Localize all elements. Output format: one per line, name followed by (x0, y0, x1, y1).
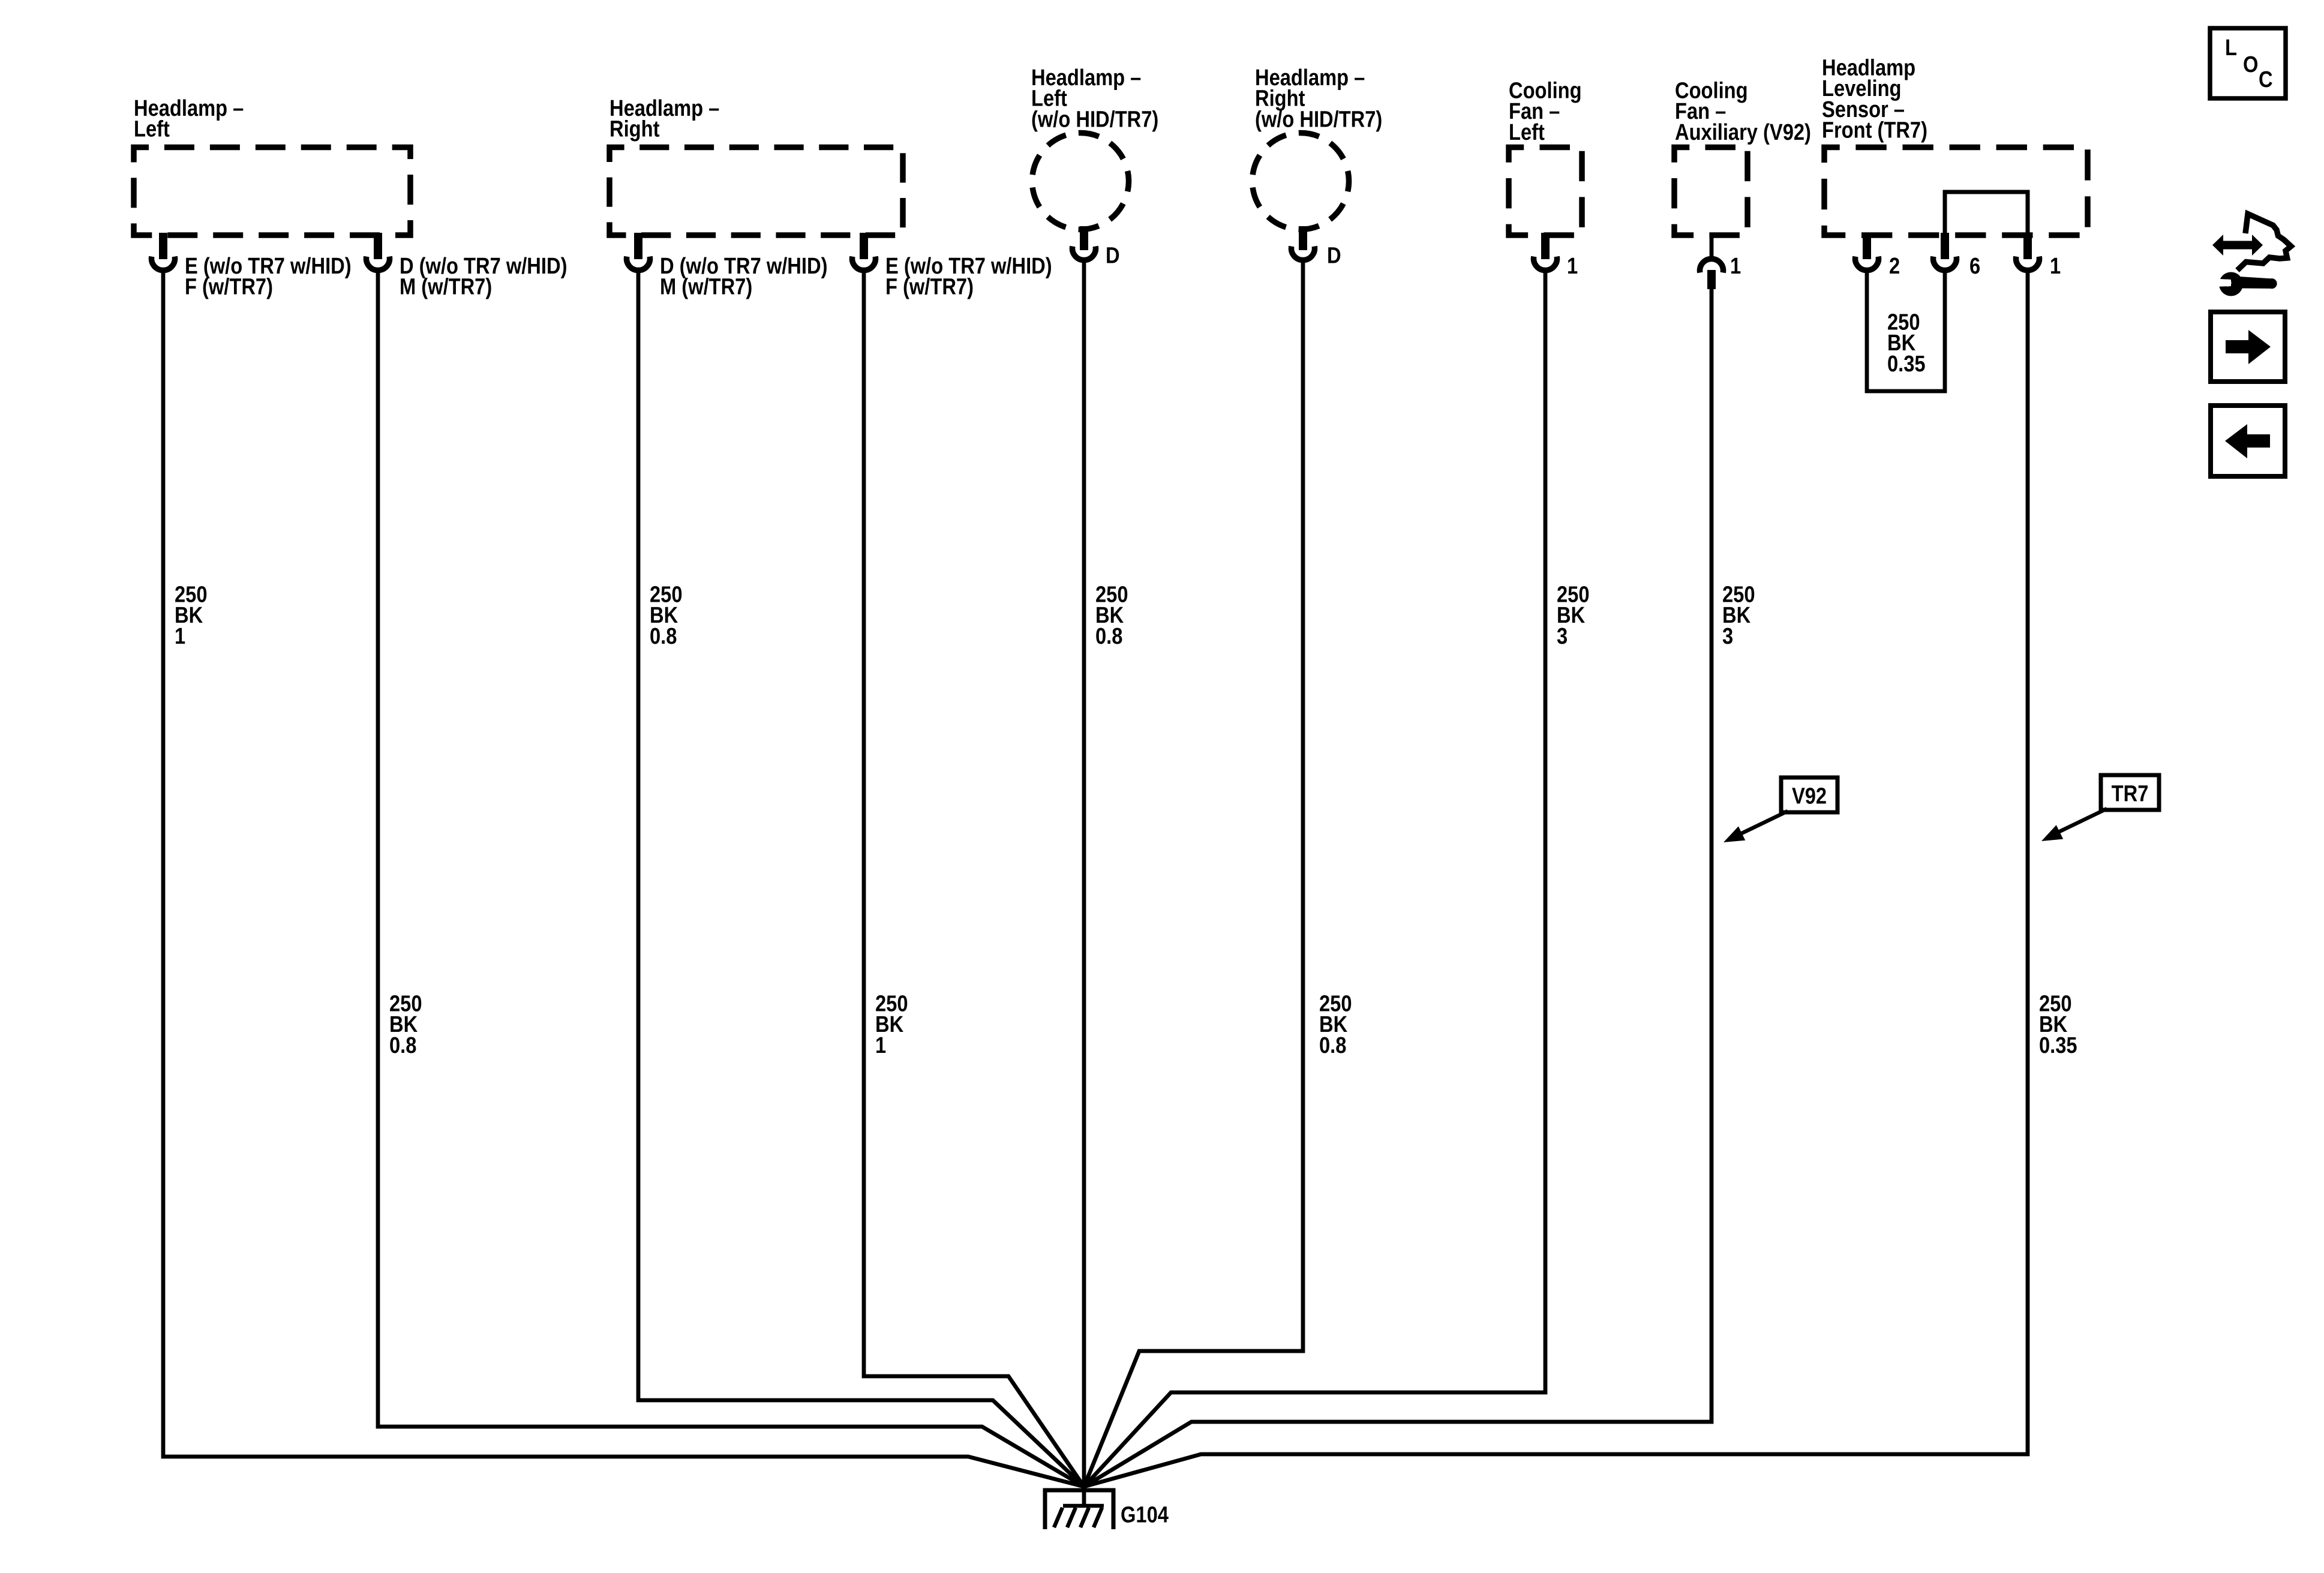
svg-text:6: 6 (1969, 253, 1980, 279)
svg-text:G104: G104 (1121, 1502, 1169, 1527)
svg-text:O: O (2243, 52, 2258, 77)
svg-text:0.8: 0.8 (1095, 623, 1122, 649)
svg-text:Front (TR7): Front (TR7) (1822, 117, 1927, 143)
svg-text:M (w/TR7): M (w/TR7) (400, 274, 492, 299)
svg-text:L: L (2225, 35, 2237, 61)
svg-text:Right: Right (609, 116, 660, 142)
svg-text:F (w/TR7): F (w/TR7) (885, 274, 974, 299)
svg-text:0.35: 0.35 (2039, 1032, 2077, 1058)
svg-text:1: 1 (175, 623, 185, 649)
svg-text:Left: Left (134, 116, 170, 142)
svg-text:0.35: 0.35 (1887, 351, 1926, 377)
svg-text:1: 1 (2050, 253, 2061, 279)
svg-text:C: C (2259, 67, 2273, 92)
svg-text:M (w/TR7): M (w/TR7) (660, 274, 752, 299)
svg-text:2: 2 (1889, 253, 1900, 279)
svg-text:TR7: TR7 (2112, 781, 2149, 806)
svg-text:V92: V92 (1792, 783, 1827, 809)
svg-text:D: D (1106, 242, 1120, 268)
svg-text:F (w/TR7): F (w/TR7) (185, 274, 273, 299)
svg-text:D: D (1327, 242, 1341, 268)
svg-text:1: 1 (875, 1032, 886, 1058)
svg-text:0.8: 0.8 (650, 623, 677, 649)
svg-text:(w/o HID/TR7): (w/o HID/TR7) (1031, 106, 1158, 132)
svg-text:0.8: 0.8 (1319, 1032, 1346, 1058)
svg-text:(w/o HID/TR7): (w/o HID/TR7) (1255, 106, 1382, 132)
svg-text:1: 1 (1730, 253, 1741, 279)
svg-text:3: 3 (1557, 623, 1568, 649)
svg-text:3: 3 (1722, 623, 1733, 649)
svg-text:Left: Left (1509, 119, 1545, 145)
svg-text:1: 1 (1567, 253, 1578, 279)
svg-text:0.8: 0.8 (389, 1032, 416, 1058)
svg-text:Auxiliary (V92): Auxiliary (V92) (1675, 119, 1811, 145)
